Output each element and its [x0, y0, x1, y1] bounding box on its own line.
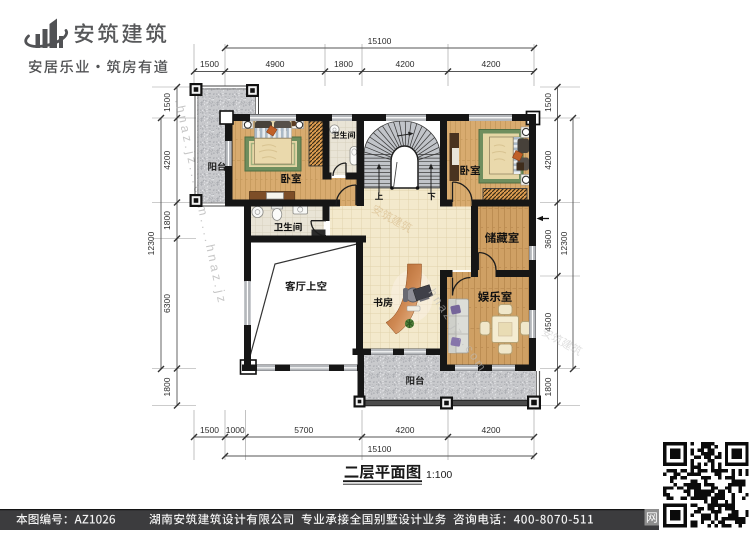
svg-text:15100: 15100 — [368, 36, 392, 46]
svg-text:3600: 3600 — [543, 230, 553, 249]
svg-text:1:100: 1:100 — [426, 469, 452, 481]
svg-text:4900: 4900 — [266, 59, 285, 69]
svg-text:4200: 4200 — [482, 59, 501, 69]
svg-text:6300: 6300 — [162, 294, 172, 313]
svg-text:1500: 1500 — [162, 93, 172, 112]
svg-text:15100: 15100 — [368, 444, 392, 454]
svg-text:1800: 1800 — [334, 59, 353, 69]
svg-text:4500: 4500 — [543, 313, 553, 332]
svg-text:1500: 1500 — [543, 93, 553, 112]
svg-text:4200: 4200 — [482, 425, 501, 435]
svg-text:5700: 5700 — [294, 425, 313, 435]
svg-text:1000: 1000 — [226, 425, 245, 435]
svg-text:1800: 1800 — [162, 211, 172, 230]
svg-text:4200: 4200 — [396, 425, 415, 435]
svg-text:4200: 4200 — [396, 59, 415, 69]
svg-text:1500: 1500 — [200, 59, 219, 69]
svg-text:12300: 12300 — [146, 231, 156, 255]
svg-text:12300: 12300 — [559, 231, 569, 255]
svg-text:4200: 4200 — [162, 151, 172, 170]
svg-text:4200: 4200 — [543, 151, 553, 170]
svg-text:1800: 1800 — [543, 377, 553, 396]
svg-text:1500: 1500 — [200, 425, 219, 435]
svg-text:1800: 1800 — [162, 377, 172, 396]
